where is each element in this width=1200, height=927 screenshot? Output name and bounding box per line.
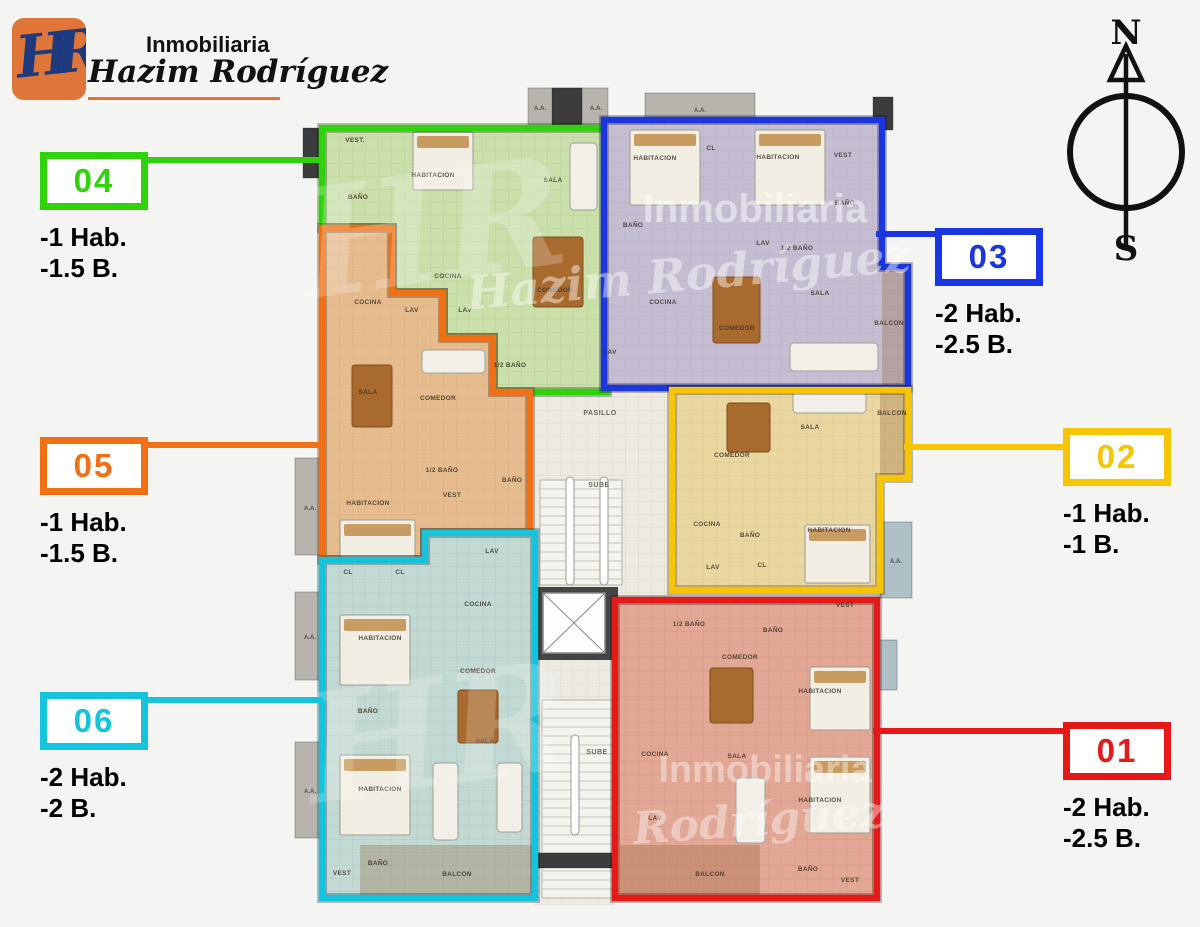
room-label: CL bbox=[343, 569, 352, 576]
ac-unit-label: A.A. bbox=[304, 635, 316, 641]
room-label: HABITACION bbox=[798, 688, 841, 695]
unit-05-number: 05 bbox=[74, 447, 115, 485]
unit-02-callout: 02 -1 Hab. -1 B. bbox=[1063, 428, 1171, 560]
room-label: SALA bbox=[811, 290, 830, 297]
room-label: 1/2 BAÑO bbox=[673, 619, 705, 628]
unit-06-stat-hab: -2 Hab. bbox=[40, 762, 148, 793]
watermark-text: Inmobiliaria bbox=[658, 749, 872, 791]
room-label: VEST bbox=[836, 602, 854, 609]
unit-04-connector bbox=[145, 157, 323, 163]
unit-01-stat-hab: -2 Hab. bbox=[1063, 792, 1171, 823]
unit-03-stat-hab: -2 Hab. bbox=[935, 298, 1043, 329]
corridor-label: SUBE bbox=[588, 482, 609, 489]
room-label: VEST. bbox=[345, 137, 365, 144]
unit-04-number: 04 bbox=[74, 162, 115, 200]
unit-06-connector bbox=[145, 697, 323, 703]
room-label: COMEDOR bbox=[719, 325, 755, 332]
room-label: BALCON bbox=[442, 871, 472, 878]
room-label: LAV bbox=[485, 548, 499, 555]
room-label: 1/2 BAÑO bbox=[426, 465, 458, 474]
room-label: LAV bbox=[706, 564, 720, 571]
room-label: HABITACION bbox=[807, 527, 850, 534]
room-label: COCINA bbox=[693, 521, 720, 528]
dining-table-icon bbox=[352, 365, 392, 427]
compass: N S bbox=[1060, 10, 1190, 262]
watermark-text: Inmobiliaria bbox=[643, 187, 868, 231]
room-label: COMEDOR bbox=[420, 395, 456, 402]
unit-06-number: 06 bbox=[74, 702, 115, 740]
unit-01-stat-bath: -2.5 B. bbox=[1063, 823, 1171, 854]
unit-01-callout: 01 -2 Hab. -2.5 B. bbox=[1063, 722, 1171, 854]
ac-unit-label: A.A. bbox=[694, 108, 706, 114]
unit-02-number: 02 bbox=[1097, 438, 1138, 476]
ac-unit-block bbox=[538, 853, 615, 868]
unit-04-stats: -1 Hab. -1.5 B. bbox=[40, 222, 148, 284]
sofa-icon bbox=[790, 343, 878, 371]
unit-06-callout: 06 -2 Hab. -2 B. bbox=[40, 692, 148, 824]
room-label: COMEDOR bbox=[722, 654, 758, 661]
room-label: BALCON bbox=[877, 410, 907, 417]
room-label: HABITACION bbox=[346, 500, 389, 507]
room-label: BAÑO bbox=[740, 530, 760, 539]
unit-01-number: 01 bbox=[1097, 732, 1138, 770]
room-label: CL bbox=[757, 562, 766, 569]
room-label: VEST bbox=[834, 152, 852, 159]
unit-01-label-box: 01 bbox=[1063, 722, 1171, 780]
ac-unit-label: A.A. bbox=[890, 559, 902, 565]
room-label: VEST bbox=[443, 492, 461, 499]
unit-06-label-box: 06 bbox=[40, 692, 148, 750]
room-label: HABITACION bbox=[358, 635, 401, 642]
room-label: CL bbox=[706, 145, 715, 152]
unit-02-connector bbox=[904, 444, 1066, 450]
unit-02-stat-hab: -1 Hab. bbox=[1063, 498, 1171, 529]
brand-underline bbox=[88, 97, 280, 100]
corridor-label: PASILLO bbox=[583, 410, 616, 417]
room-label: CL bbox=[395, 569, 404, 576]
unit-02-region bbox=[672, 388, 908, 590]
unit-03-number: 03 bbox=[969, 238, 1010, 276]
logo-monogram: HR bbox=[13, 18, 86, 92]
room-label: SALA bbox=[801, 424, 820, 431]
unit-02-label-box: 02 bbox=[1063, 428, 1171, 486]
unit-04-label-box: 04 bbox=[40, 152, 148, 210]
unit-03-connector bbox=[876, 231, 938, 237]
unit-01-connector bbox=[873, 728, 1065, 734]
room-label: BAÑO bbox=[623, 220, 643, 229]
logo-monogram-badge: HR bbox=[12, 18, 86, 100]
dining-table-icon bbox=[710, 668, 753, 723]
unit-06-stats: -2 Hab. -2 B. bbox=[40, 762, 148, 824]
watermark-text: HR bbox=[285, 123, 577, 335]
sofa-icon bbox=[570, 143, 597, 210]
room-label: BALCON bbox=[874, 320, 904, 327]
floor-plan: A.A.A.A.A.A.A.A.A.A.A.A.A.A.VEST.BAÑOHAB… bbox=[300, 85, 910, 907]
unit-03-label-box: 03 bbox=[935, 228, 1043, 286]
unit-06-stat-bath: -2 B. bbox=[40, 793, 148, 824]
page: HR Inmobiliaria Hazim Rodríguez N S A.A.… bbox=[0, 0, 1200, 927]
room-label: COMEDOR bbox=[714, 452, 750, 459]
dining-table-icon bbox=[727, 403, 770, 452]
unit-04-stat-bath: -1.5 B. bbox=[40, 253, 148, 284]
unit-05-label-box: 05 bbox=[40, 437, 148, 495]
unit-02-stats: -1 Hab. -1 B. bbox=[1063, 498, 1171, 560]
ac-unit-label: A.A. bbox=[304, 506, 316, 512]
room-label: VEST bbox=[333, 870, 351, 877]
stairs-upper bbox=[540, 477, 622, 585]
unit-05-stats: -1 Hab. -1.5 B. bbox=[40, 507, 148, 569]
corridor-label: SUBE bbox=[586, 749, 607, 756]
unit-03-stats: -2 Hab. -2.5 B. bbox=[935, 298, 1043, 360]
compass-south: S bbox=[1114, 229, 1139, 262]
room-label: LAV bbox=[603, 349, 617, 356]
ac-unit-block bbox=[552, 88, 582, 126]
company-logo: HR Inmobiliaria Hazim Rodríguez bbox=[0, 0, 300, 120]
sofa-icon bbox=[422, 350, 485, 373]
room-label: BAÑO bbox=[502, 475, 522, 484]
room-label: BAÑO bbox=[798, 864, 818, 873]
unit-05-stat-hab: -1 Hab. bbox=[40, 507, 148, 538]
ac-unit-label: A.A. bbox=[534, 106, 546, 112]
room-label: 1/2 BAÑO bbox=[494, 360, 526, 369]
room-label: BAÑO bbox=[763, 625, 783, 634]
unit-03-callout: 03 -2 Hab. -2.5 B. bbox=[935, 228, 1043, 360]
room-label: VEST bbox=[841, 877, 859, 884]
room-label: HABITACION bbox=[633, 155, 676, 162]
room-label: BALCON bbox=[695, 871, 725, 878]
room-label: COCINA bbox=[464, 601, 491, 608]
unit-02-stat-bath: -1 B. bbox=[1063, 529, 1171, 560]
room-label: HABITACION bbox=[756, 154, 799, 161]
watermark-text: HR bbox=[290, 628, 582, 840]
room-label: SALA bbox=[359, 389, 378, 396]
room-label: BAÑO bbox=[368, 858, 388, 867]
unit-04-callout: 04 -1 Hab. -1.5 B. bbox=[40, 152, 148, 284]
unit-05-stat-bath: -1.5 B. bbox=[40, 538, 148, 569]
unit-05-callout: 05 -1 Hab. -1.5 B. bbox=[40, 437, 148, 569]
unit-01-stats: -2 Hab. -2.5 B. bbox=[1063, 792, 1171, 854]
unit-04-stat-hab: -1 Hab. bbox=[40, 222, 148, 253]
unit-03-stat-bath: -2.5 B. bbox=[935, 329, 1043, 360]
unit-05-connector bbox=[145, 442, 323, 448]
ac-unit-label: A.A. bbox=[590, 106, 602, 112]
